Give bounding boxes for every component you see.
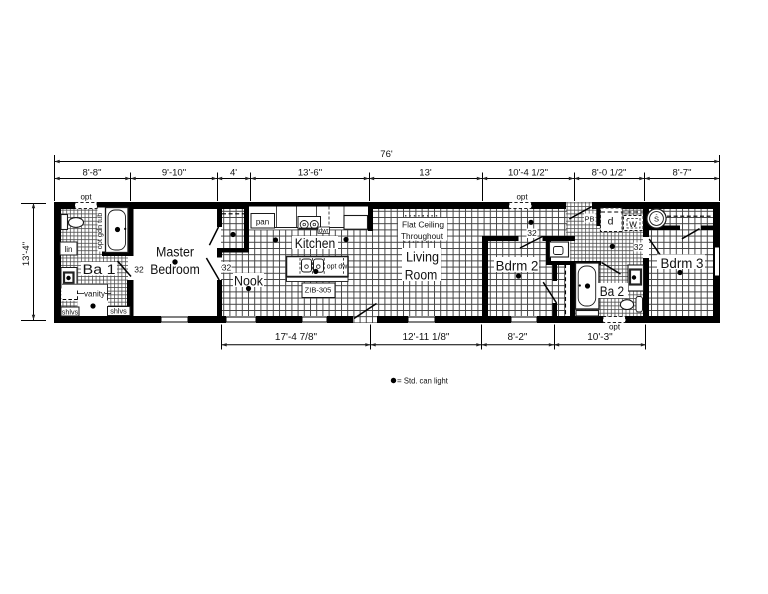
svg-text:shlvs: shlvs bbox=[110, 307, 127, 316]
svg-text:w: w bbox=[628, 218, 637, 230]
svg-text:13'-6": 13'-6" bbox=[298, 168, 322, 179]
svg-text:= Std. can light: = Std. can light bbox=[397, 376, 449, 385]
svg-text:Master: Master bbox=[156, 245, 194, 260]
svg-text:Room: Room bbox=[405, 268, 438, 283]
svg-text:opt gdn tub: opt gdn tub bbox=[95, 213, 104, 250]
svg-text:10'-4 1/2": 10'-4 1/2" bbox=[508, 168, 548, 179]
svg-text:PB: PB bbox=[584, 215, 594, 224]
svg-text:ZIB-305: ZIB-305 bbox=[305, 285, 332, 294]
svg-text:opt dw: opt dw bbox=[327, 264, 349, 271]
svg-text:vanity: vanity bbox=[84, 290, 105, 299]
svg-text:Kitchen: Kitchen bbox=[295, 236, 336, 251]
svg-text:8'-2": 8'-2" bbox=[508, 332, 528, 343]
svg-text:76': 76' bbox=[380, 149, 393, 160]
svg-text:32: 32 bbox=[222, 263, 232, 273]
svg-text:32: 32 bbox=[634, 242, 644, 252]
svg-text:dwr: dwr bbox=[319, 228, 329, 234]
svg-text:shlvs: shlvs bbox=[62, 308, 79, 317]
svg-text:Bdrm 2: Bdrm 2 bbox=[496, 259, 539, 274]
svg-text:Ba 2: Ba 2 bbox=[600, 284, 624, 299]
svg-text:Living: Living bbox=[406, 250, 439, 265]
svg-text:Ba 1: Ba 1 bbox=[83, 262, 116, 277]
svg-text:10'-3": 10'-3" bbox=[587, 332, 613, 343]
svg-text:32: 32 bbox=[527, 228, 537, 238]
svg-text:8'-8": 8'-8" bbox=[83, 168, 102, 179]
svg-text:13'-4": 13'-4" bbox=[21, 242, 32, 266]
svg-text:9'-10": 9'-10" bbox=[162, 168, 186, 179]
svg-text:d: d bbox=[608, 216, 614, 228]
svg-text:lin: lin bbox=[64, 245, 72, 254]
svg-text:opt: opt bbox=[516, 193, 528, 202]
svg-text:pan: pan bbox=[256, 218, 269, 227]
svg-text:32: 32 bbox=[134, 265, 144, 275]
svg-text:8'-7": 8'-7" bbox=[673, 168, 692, 179]
svg-text:opt: opt bbox=[80, 193, 92, 202]
svg-text:8'-0 1/2": 8'-0 1/2" bbox=[592, 168, 627, 179]
svg-text:opt: opt bbox=[609, 322, 621, 331]
svg-text:17'-4 7/8": 17'-4 7/8" bbox=[275, 332, 318, 343]
svg-text:Throughout: Throughout bbox=[401, 231, 444, 241]
svg-text:Bdrm 3: Bdrm 3 bbox=[661, 256, 704, 271]
svg-text:12'-11 1/8": 12'-11 1/8" bbox=[403, 332, 450, 343]
svg-text:4': 4' bbox=[230, 168, 237, 179]
svg-text:13': 13' bbox=[419, 168, 432, 179]
svg-text:Flat Ceiling: Flat Ceiling bbox=[402, 220, 444, 230]
svg-text:-: - bbox=[656, 213, 658, 219]
